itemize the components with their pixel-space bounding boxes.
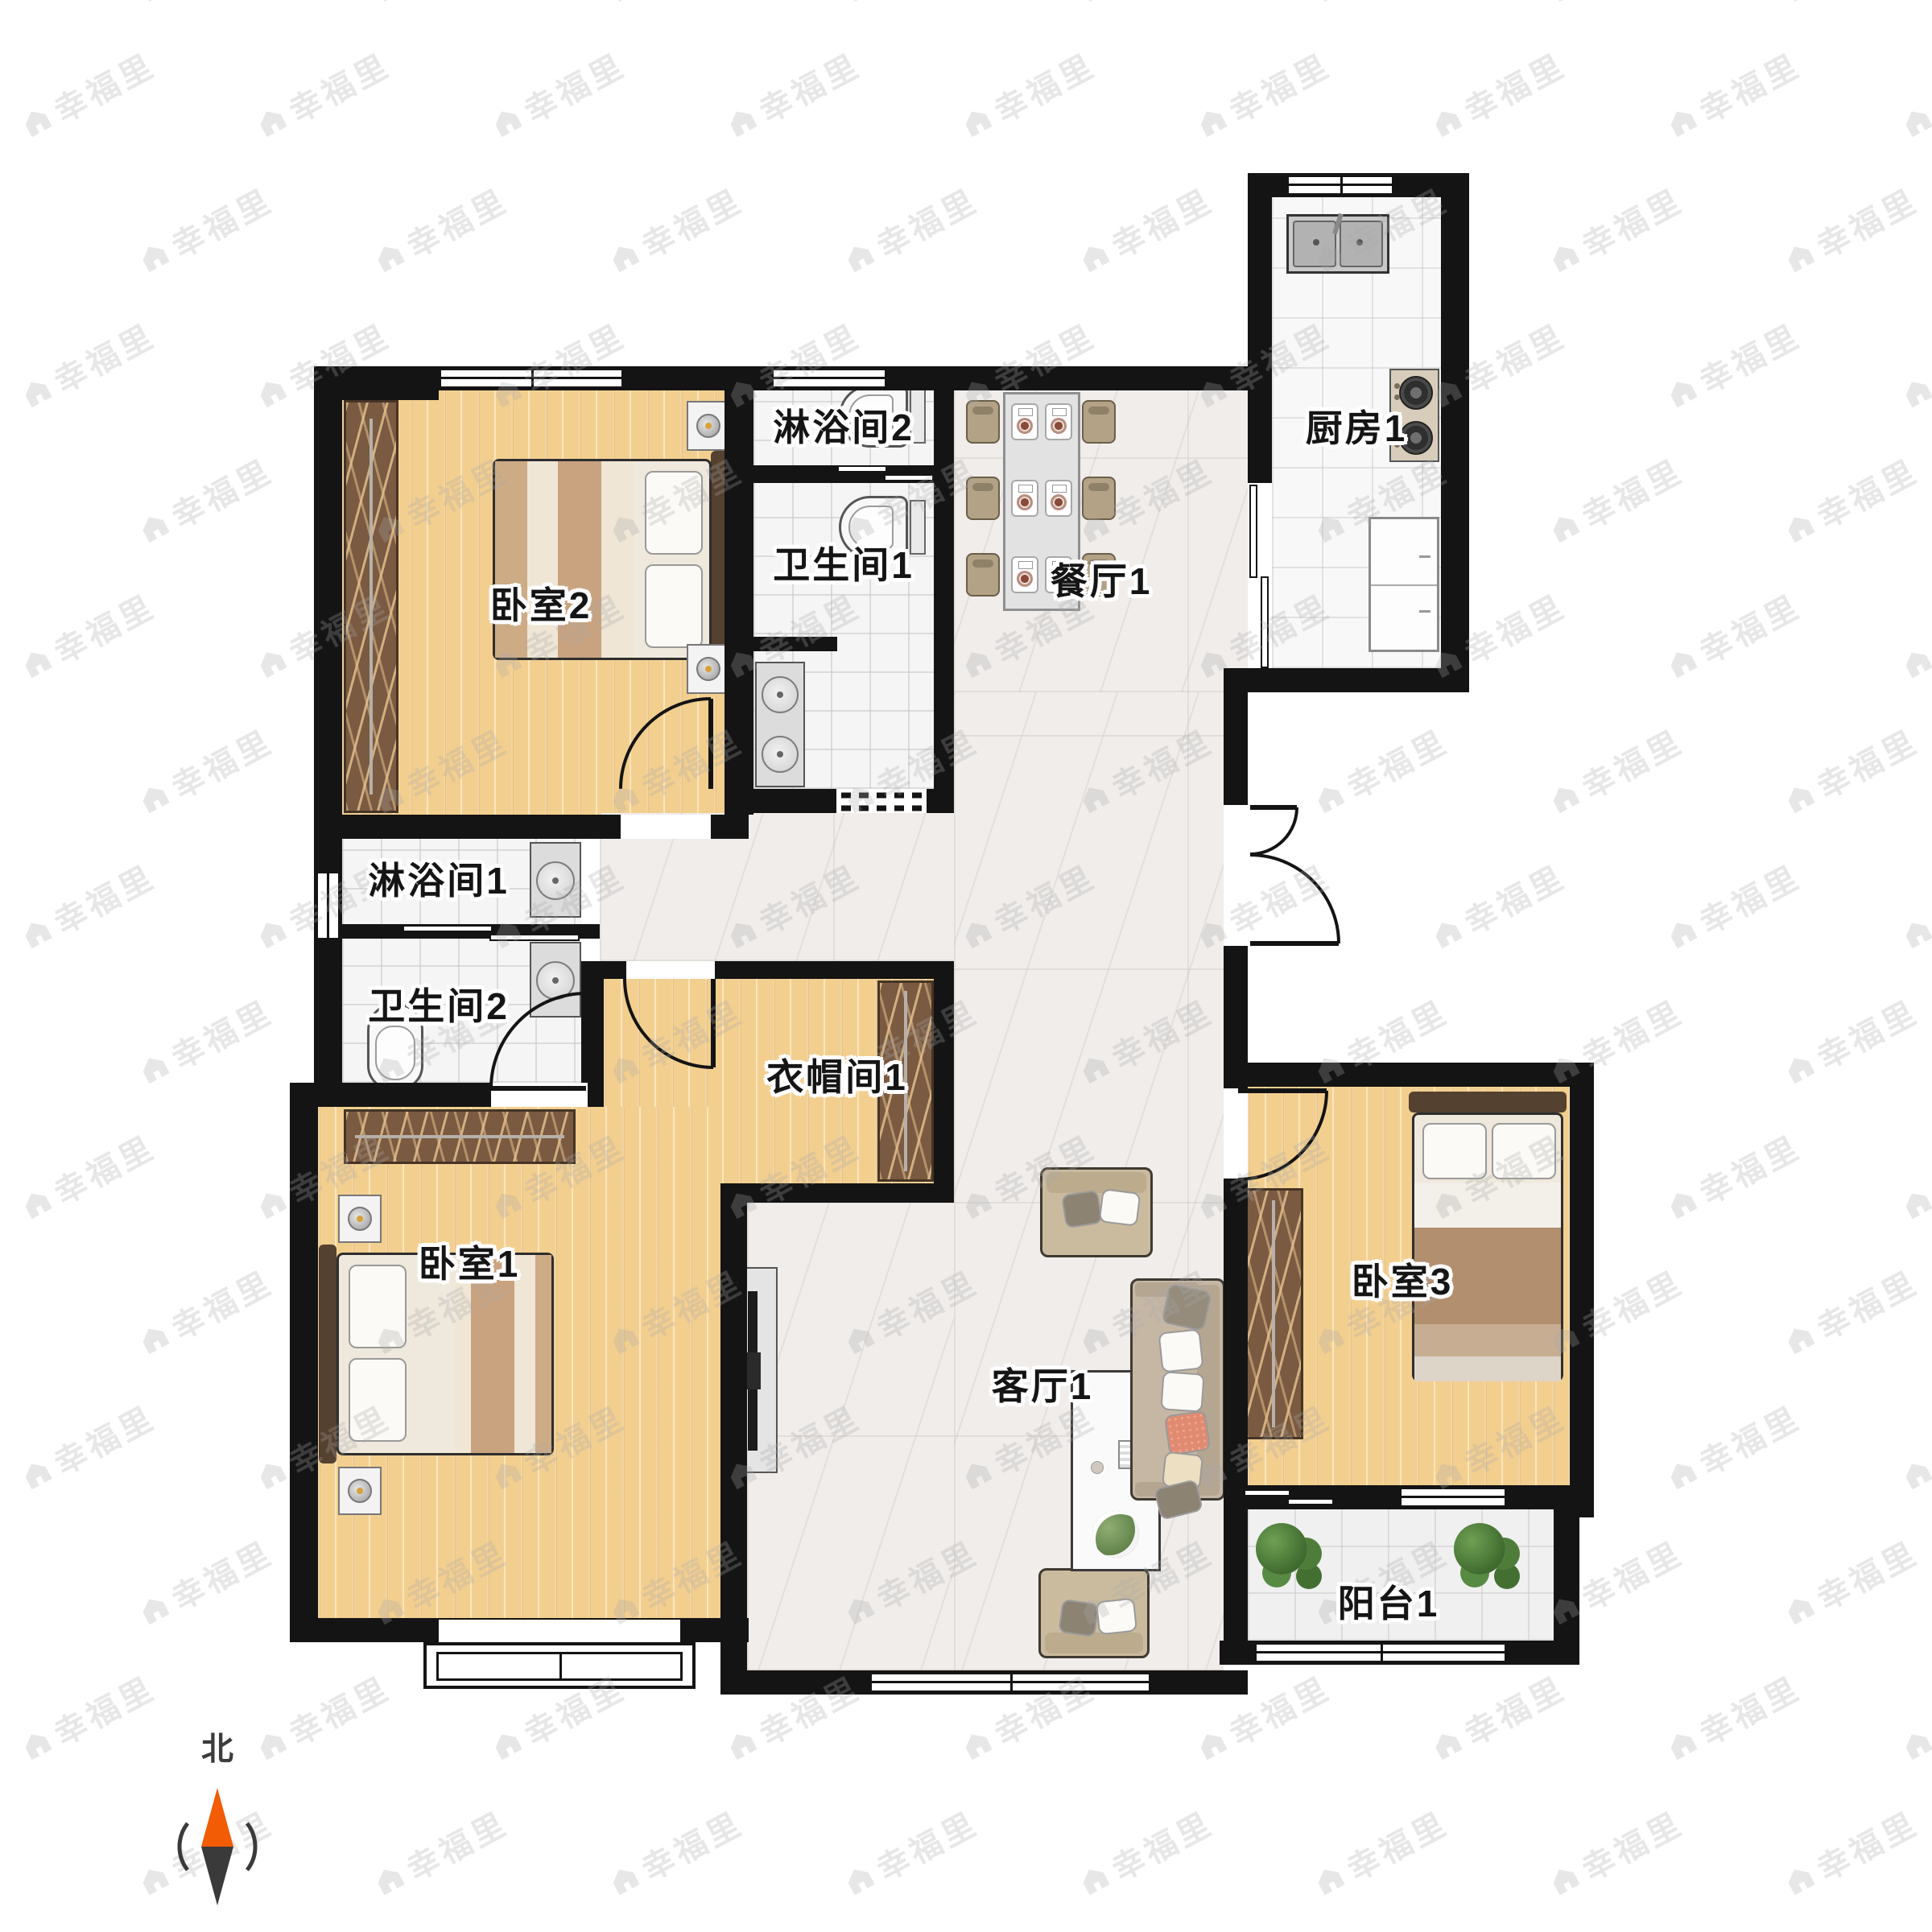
watermark-item: 幸福里 xyxy=(131,986,280,1095)
watermark-item: 幸福里 xyxy=(1659,39,1808,148)
watermark-item: 幸福里 xyxy=(1777,1257,1926,1365)
room-label-bedroom1: 卧室1 xyxy=(419,1245,521,1282)
watermark-item: 幸福里 xyxy=(1659,851,1808,960)
watermark-item: 幸福里 xyxy=(1894,1662,1932,1771)
bay-window xyxy=(423,1642,696,1689)
watermark-item: 幸福里 xyxy=(14,580,163,689)
wall-segment xyxy=(1554,1509,1579,1665)
watermark-item: 幸福里 xyxy=(1542,716,1690,824)
watermark-item: 幸福里 xyxy=(1659,1662,1808,1771)
window xyxy=(869,1672,1151,1693)
watermark-item: 幸福里 xyxy=(1659,580,1808,689)
watermark-item: 幸福里 xyxy=(1894,310,1932,419)
watermark-item: 幸福里 xyxy=(1071,0,1220,14)
armchair xyxy=(1040,1167,1153,1257)
sliding-door xyxy=(402,925,493,932)
door-gap xyxy=(621,815,711,839)
kitchen-fridge xyxy=(1368,517,1439,652)
floor-plan-canvas: 淋浴间2 卫生间1 餐厅1 厨房1 卧室2 淋浴间1 卫生间2 衣帽间1 卧室1… xyxy=(0,0,1932,1932)
bedroom1-bed-headboard xyxy=(319,1245,336,1463)
wall-segment xyxy=(724,366,753,815)
watermark-item: 幸福里 xyxy=(14,310,163,419)
compass: 北 xyxy=(145,1723,290,1916)
watermark-item: 幸福里 xyxy=(1894,1392,1932,1501)
watermark-item: 幸福里 xyxy=(719,39,868,148)
lamp-icon xyxy=(696,414,720,438)
watermark-item: 幸福里 xyxy=(1659,1121,1808,1230)
watermark-item: 幸福里 xyxy=(1659,1392,1808,1501)
lamp-icon xyxy=(348,1479,372,1503)
wall-segment xyxy=(934,366,954,813)
wall-segment xyxy=(1570,1063,1594,1517)
watermark-item: 幸福里 xyxy=(836,1798,985,1906)
sliding-door xyxy=(489,934,580,941)
watermark-item: 幸福里 xyxy=(1777,1527,1926,1636)
watermark-item: 幸福里 xyxy=(14,1392,163,1501)
sliding-door xyxy=(1244,1489,1290,1496)
watermark-item: 幸福里 xyxy=(1542,175,1690,283)
tv-mount xyxy=(745,1352,761,1389)
room-label-balcony: 阳台1 xyxy=(1338,1585,1440,1622)
room-label-bedroom2: 卧室2 xyxy=(490,587,592,624)
watermark-item: 幸福里 xyxy=(14,851,163,960)
watermark-item: 幸福里 xyxy=(366,0,515,14)
wall-segment xyxy=(749,637,837,651)
wall-segment xyxy=(720,1618,747,1695)
watermark-item: 幸福里 xyxy=(1542,1798,1690,1906)
sliding-door xyxy=(837,465,887,473)
bedroom3-bed-headboard xyxy=(1409,1092,1567,1113)
shower1-vanity xyxy=(530,842,581,918)
bedroom1-wardrobe xyxy=(344,1109,576,1164)
watermark-item: 幸福里 xyxy=(1071,175,1220,283)
wall-segment xyxy=(720,1183,954,1203)
wall-segment xyxy=(720,1203,747,1670)
kitchen-sink xyxy=(1286,214,1389,274)
watermark-item: 幸福里 xyxy=(131,0,280,14)
sliding-door xyxy=(1249,485,1257,578)
watermark-item: 幸福里 xyxy=(1777,0,1926,14)
bedroom1-nightstand xyxy=(338,1195,382,1243)
sofa xyxy=(1130,1278,1225,1501)
room-label-bedroom3: 卧室3 xyxy=(1352,1263,1454,1300)
room-label-dining: 餐厅1 xyxy=(1051,563,1153,600)
watermark-item: 幸福里 xyxy=(1542,0,1690,14)
wall-segment xyxy=(934,961,954,1203)
room-label-living: 客厅1 xyxy=(992,1368,1094,1405)
watermark-item: 幸福里 xyxy=(131,175,280,283)
watermark-item: 幸福里 xyxy=(1542,445,1690,554)
watermark-item: 幸福里 xyxy=(249,39,398,148)
watermark-item: 幸福里 xyxy=(1894,851,1932,960)
armchair xyxy=(1038,1568,1150,1658)
sliding-door xyxy=(1261,576,1269,668)
watermark-item: 幸福里 xyxy=(1777,716,1926,824)
door-gap xyxy=(491,1083,588,1107)
window xyxy=(316,871,341,940)
room-label-shower2: 淋浴间2 xyxy=(773,409,914,446)
watermark-item: 幸福里 xyxy=(601,175,750,283)
bedroom2-nightstand xyxy=(687,644,730,694)
door-gap xyxy=(626,961,715,979)
watermark-item: 幸福里 xyxy=(954,39,1103,148)
watermark-item: 幸福里 xyxy=(1424,1662,1573,1771)
opening-gap xyxy=(836,789,927,813)
watermark-item: 幸福里 xyxy=(1307,716,1455,824)
watermark-item: 幸福里 xyxy=(1189,39,1338,148)
wall-segment xyxy=(1224,1063,1594,1087)
room-label-shower1: 淋浴间1 xyxy=(368,862,510,899)
wall-segment xyxy=(314,366,342,1083)
wall-segment xyxy=(581,961,604,1083)
plant-icon xyxy=(1454,1523,1505,1575)
watermark-item: 幸福里 xyxy=(131,1527,280,1636)
watermark-item: 幸福里 xyxy=(836,175,985,283)
watermark-item: 幸福里 xyxy=(1894,1121,1932,1230)
bedroom2-bed xyxy=(493,459,712,660)
window xyxy=(439,368,624,389)
window xyxy=(1399,1487,1507,1508)
window xyxy=(771,368,887,389)
watermark-item: 幸福里 xyxy=(1777,1798,1926,1906)
wall-segment xyxy=(1441,173,1469,692)
watermark-item: 幸福里 xyxy=(836,0,985,14)
plant-icon xyxy=(1256,1523,1307,1575)
watermark-item: 幸福里 xyxy=(1071,1798,1220,1906)
sliding-door xyxy=(1287,1498,1334,1505)
lamp-icon xyxy=(348,1207,372,1231)
room-label-kitchen: 厨房1 xyxy=(1306,410,1408,447)
watermark-item: 幸福里 xyxy=(1424,39,1573,148)
watermark-item: 幸福里 xyxy=(1894,39,1932,148)
watermark-item: 幸福里 xyxy=(366,1798,515,1906)
bath1-double-vanity xyxy=(755,662,805,787)
compass-north-label: 北 xyxy=(145,1723,290,1769)
watermark-item: 幸福里 xyxy=(131,445,280,554)
room-label-bath2: 卫生间2 xyxy=(368,988,510,1025)
watermark-item: 幸福里 xyxy=(601,0,750,14)
door-gap xyxy=(1224,1088,1248,1179)
watermark-item: 幸福里 xyxy=(1424,851,1573,960)
room-label-bath1: 卫生间1 xyxy=(773,547,914,584)
watermark-item: 幸福里 xyxy=(14,39,163,148)
entry-door-gap xyxy=(1224,805,1248,946)
watermark-item: 幸福里 xyxy=(1777,986,1926,1095)
watermark-item: 幸福里 xyxy=(131,716,280,824)
watermark-item: 幸福里 xyxy=(1307,0,1455,14)
lamp-icon xyxy=(696,657,720,681)
watermark-item: 幸福里 xyxy=(1659,310,1808,419)
bedroom3-bed xyxy=(1412,1113,1563,1381)
watermark-item: 幸福里 xyxy=(1307,1798,1455,1906)
wall-segment xyxy=(1248,668,1469,692)
watermark-item: 幸福里 xyxy=(1777,175,1926,283)
watermark-item: 幸福里 xyxy=(1777,445,1926,554)
watermark-item: 幸福里 xyxy=(366,175,515,283)
watermark-item: 幸福里 xyxy=(484,39,633,148)
compass-icon xyxy=(161,1774,274,1919)
watermark-item: 幸福里 xyxy=(14,1121,163,1230)
watermark-item: 幸福里 xyxy=(1894,580,1932,689)
bedroom3-wardrobe xyxy=(1244,1188,1303,1439)
living-floor xyxy=(747,1203,954,1670)
window xyxy=(1254,1642,1507,1663)
bay-window-gap xyxy=(439,1620,680,1642)
bedroom1-nightstand xyxy=(338,1467,382,1515)
watermark-item: 幸福里 xyxy=(601,1798,750,1906)
room-label-closet: 衣帽间1 xyxy=(766,1059,908,1096)
sliding-door xyxy=(884,474,934,481)
watermark-item: 幸福里 xyxy=(131,1257,280,1365)
window xyxy=(1286,175,1394,196)
bath2-vanity xyxy=(530,942,581,1018)
bedroom2-wardrobe xyxy=(344,400,398,813)
bedroom2-nightstand xyxy=(687,401,730,451)
flowers-icon xyxy=(1092,1511,1139,1558)
wall-segment xyxy=(290,1083,318,1642)
watermark-item: 幸福里 xyxy=(14,1662,163,1771)
